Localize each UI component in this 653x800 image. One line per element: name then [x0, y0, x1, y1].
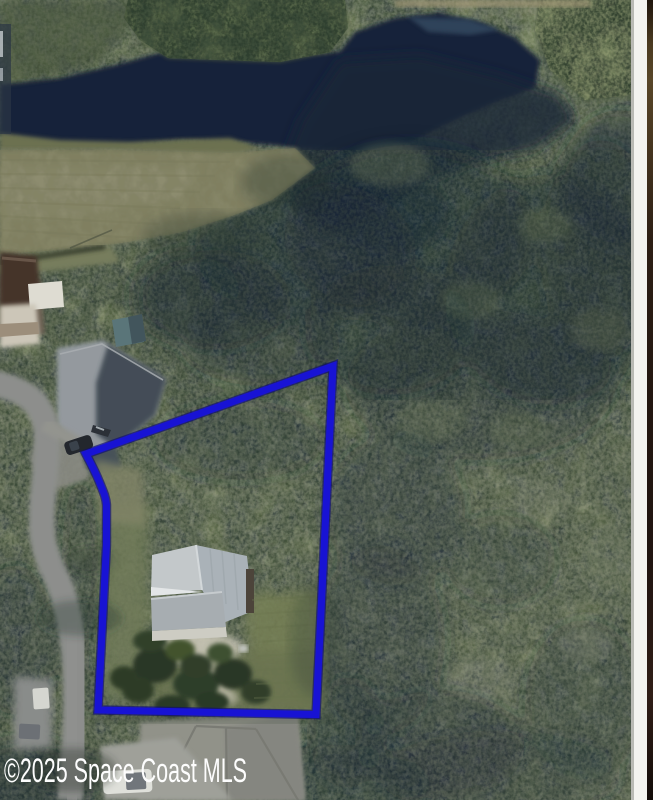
- svg-text:©2025 Space Coast MLS: ©2025 Space Coast MLS: [4, 752, 247, 790]
